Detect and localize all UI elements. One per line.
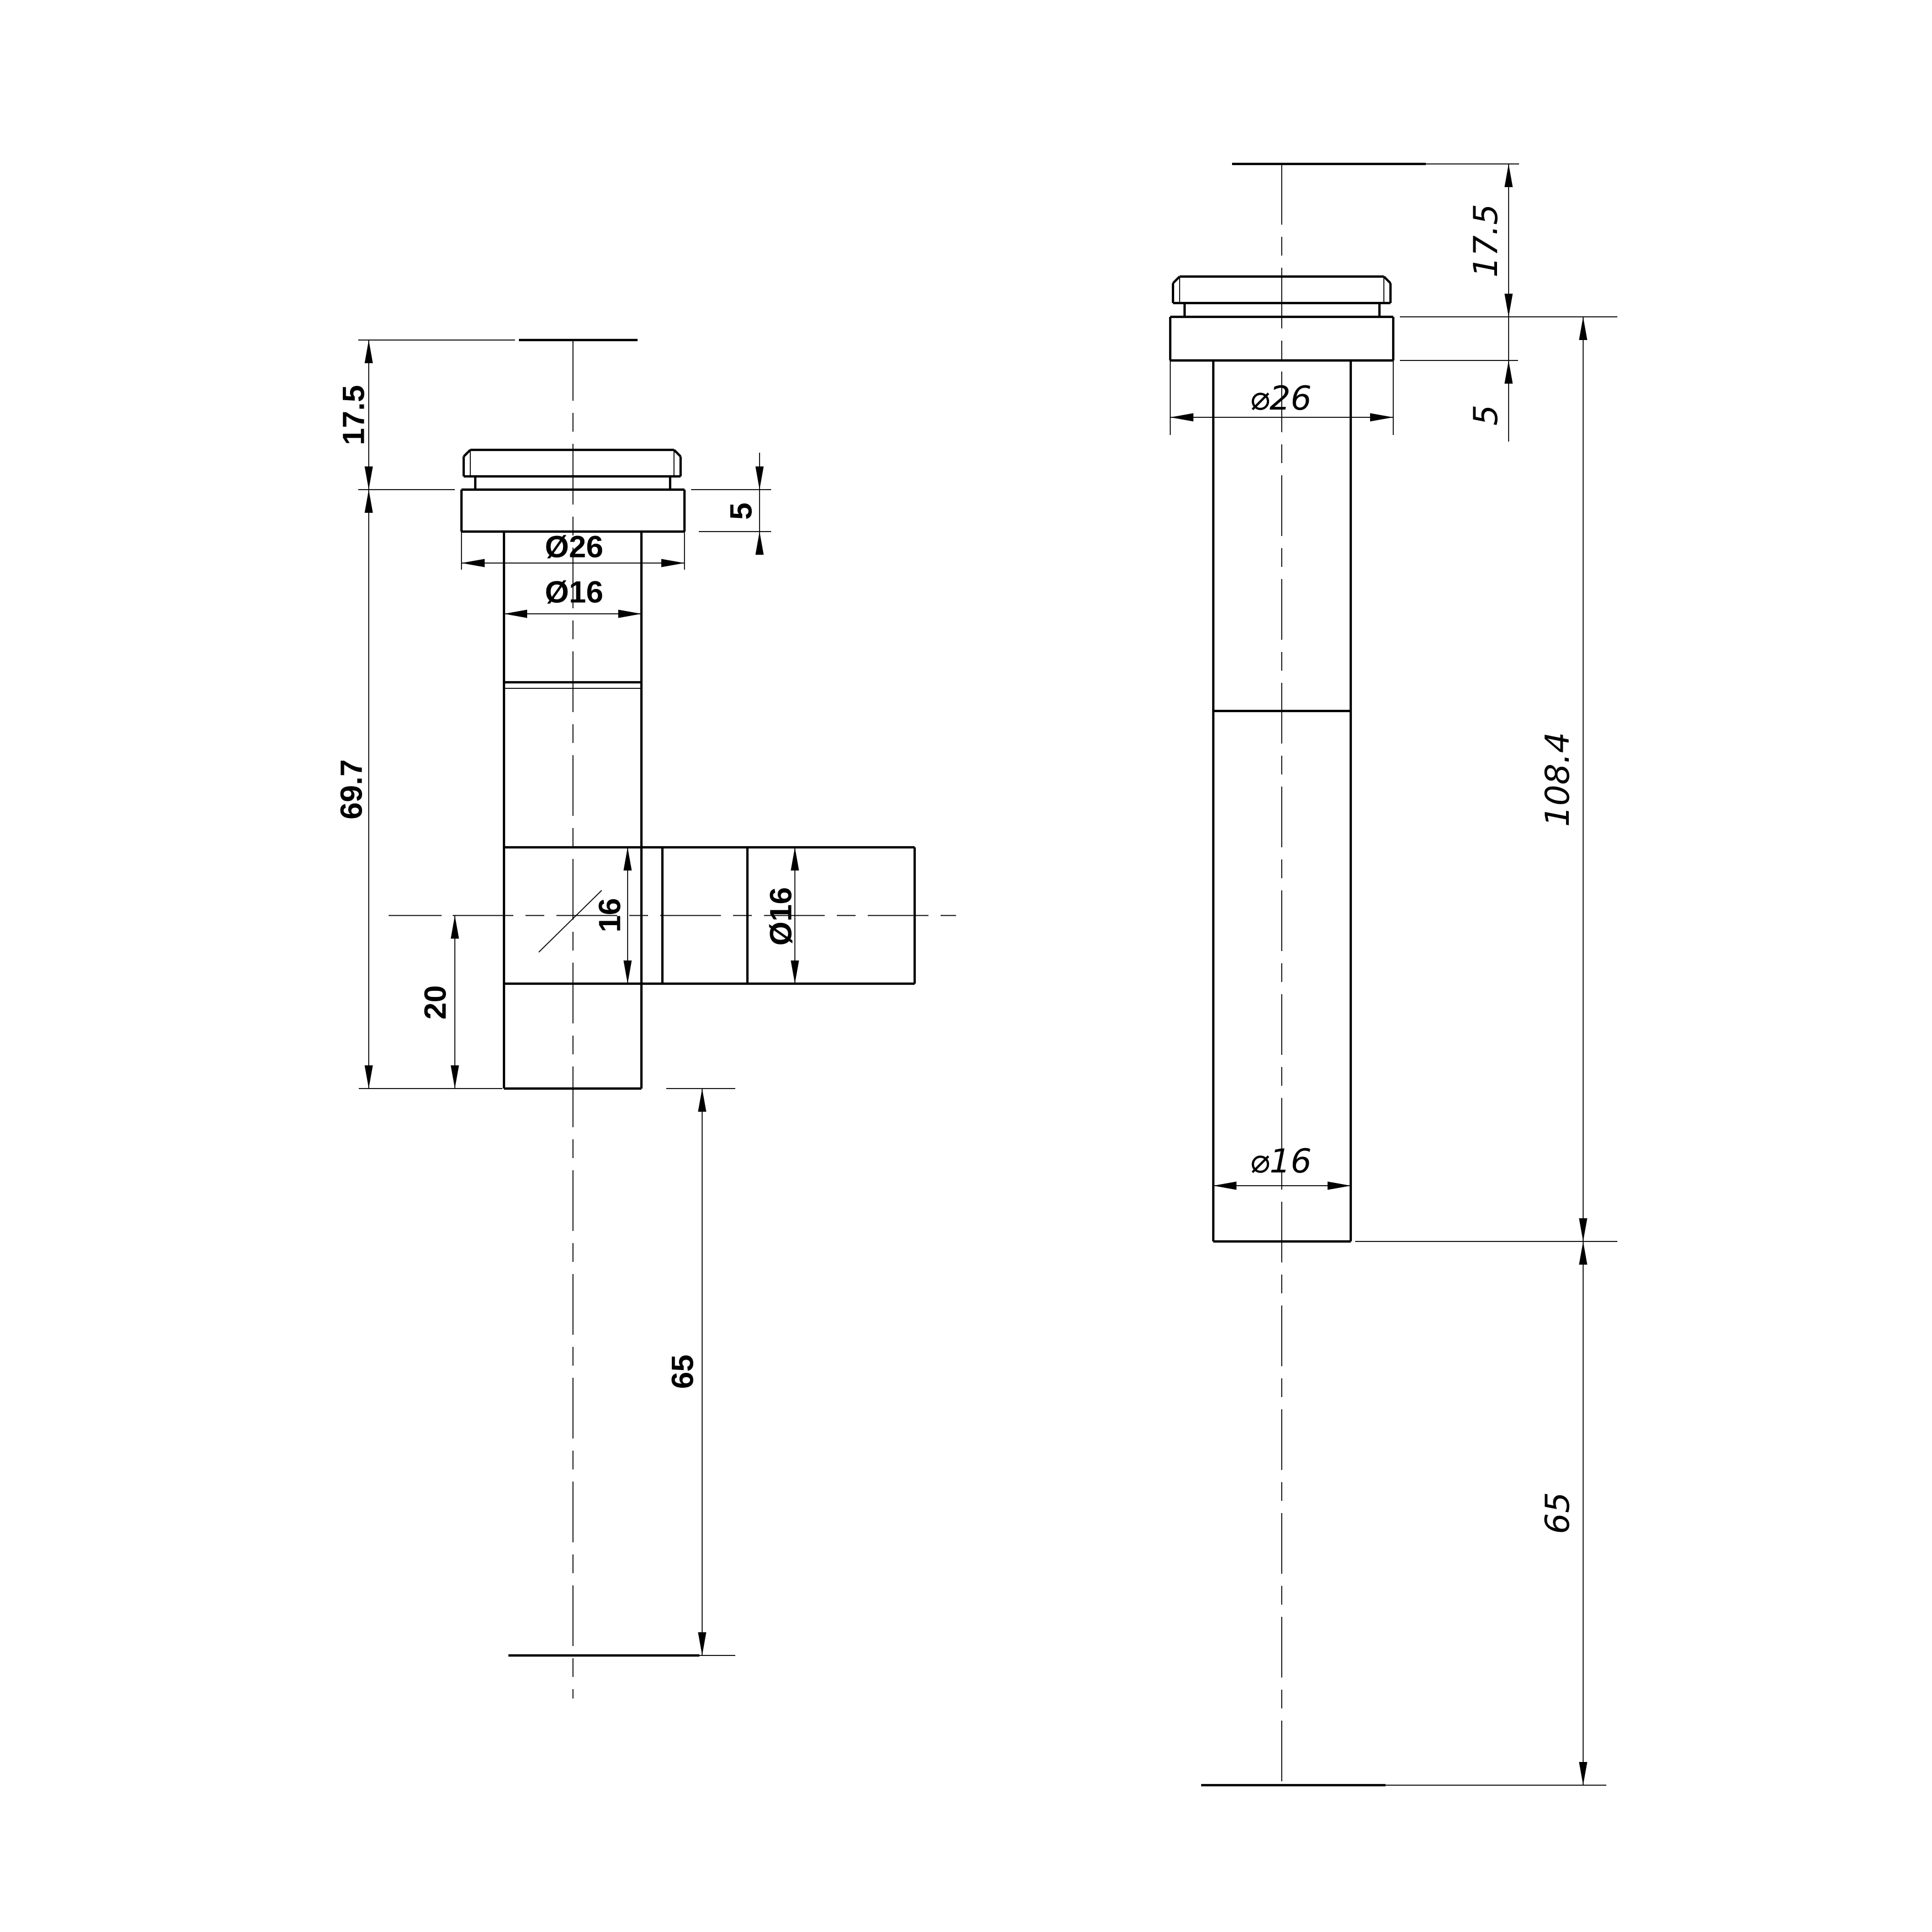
right-dim-text-dia26: ⌀26: [1250, 379, 1312, 418]
left-dim-text-16: 16: [592, 898, 627, 932]
left-dim-text-20: 20: [418, 985, 453, 1020]
left-dim-text-5: 5: [724, 502, 758, 519]
drawing-canvas: Technical drawing - pipe tee fitting, tw…: [0, 0, 1932, 1932]
right-dim-text-108-4: 108.4: [1538, 732, 1577, 827]
right-dim-text-dia16: ⌀16: [1250, 1142, 1312, 1181]
left-dim-text-69-7: 69.7: [334, 760, 369, 820]
left-dim-text-dia16-branch: Ø16: [763, 887, 798, 946]
sheet-background: [0, 0, 1932, 1932]
right-dim-text-65: 65: [1538, 1492, 1577, 1534]
right-dim-text-17-5: 17.5: [1467, 204, 1505, 278]
left-dim-text-dia16: Ø16: [545, 575, 603, 609]
left-dim-text-17-5: 17.5: [336, 385, 371, 445]
left-dim-text-dia26: Ø26: [545, 529, 603, 564]
right-dim-text-5: 5: [1467, 405, 1505, 426]
left-dim-text-65: 65: [665, 1355, 700, 1389]
